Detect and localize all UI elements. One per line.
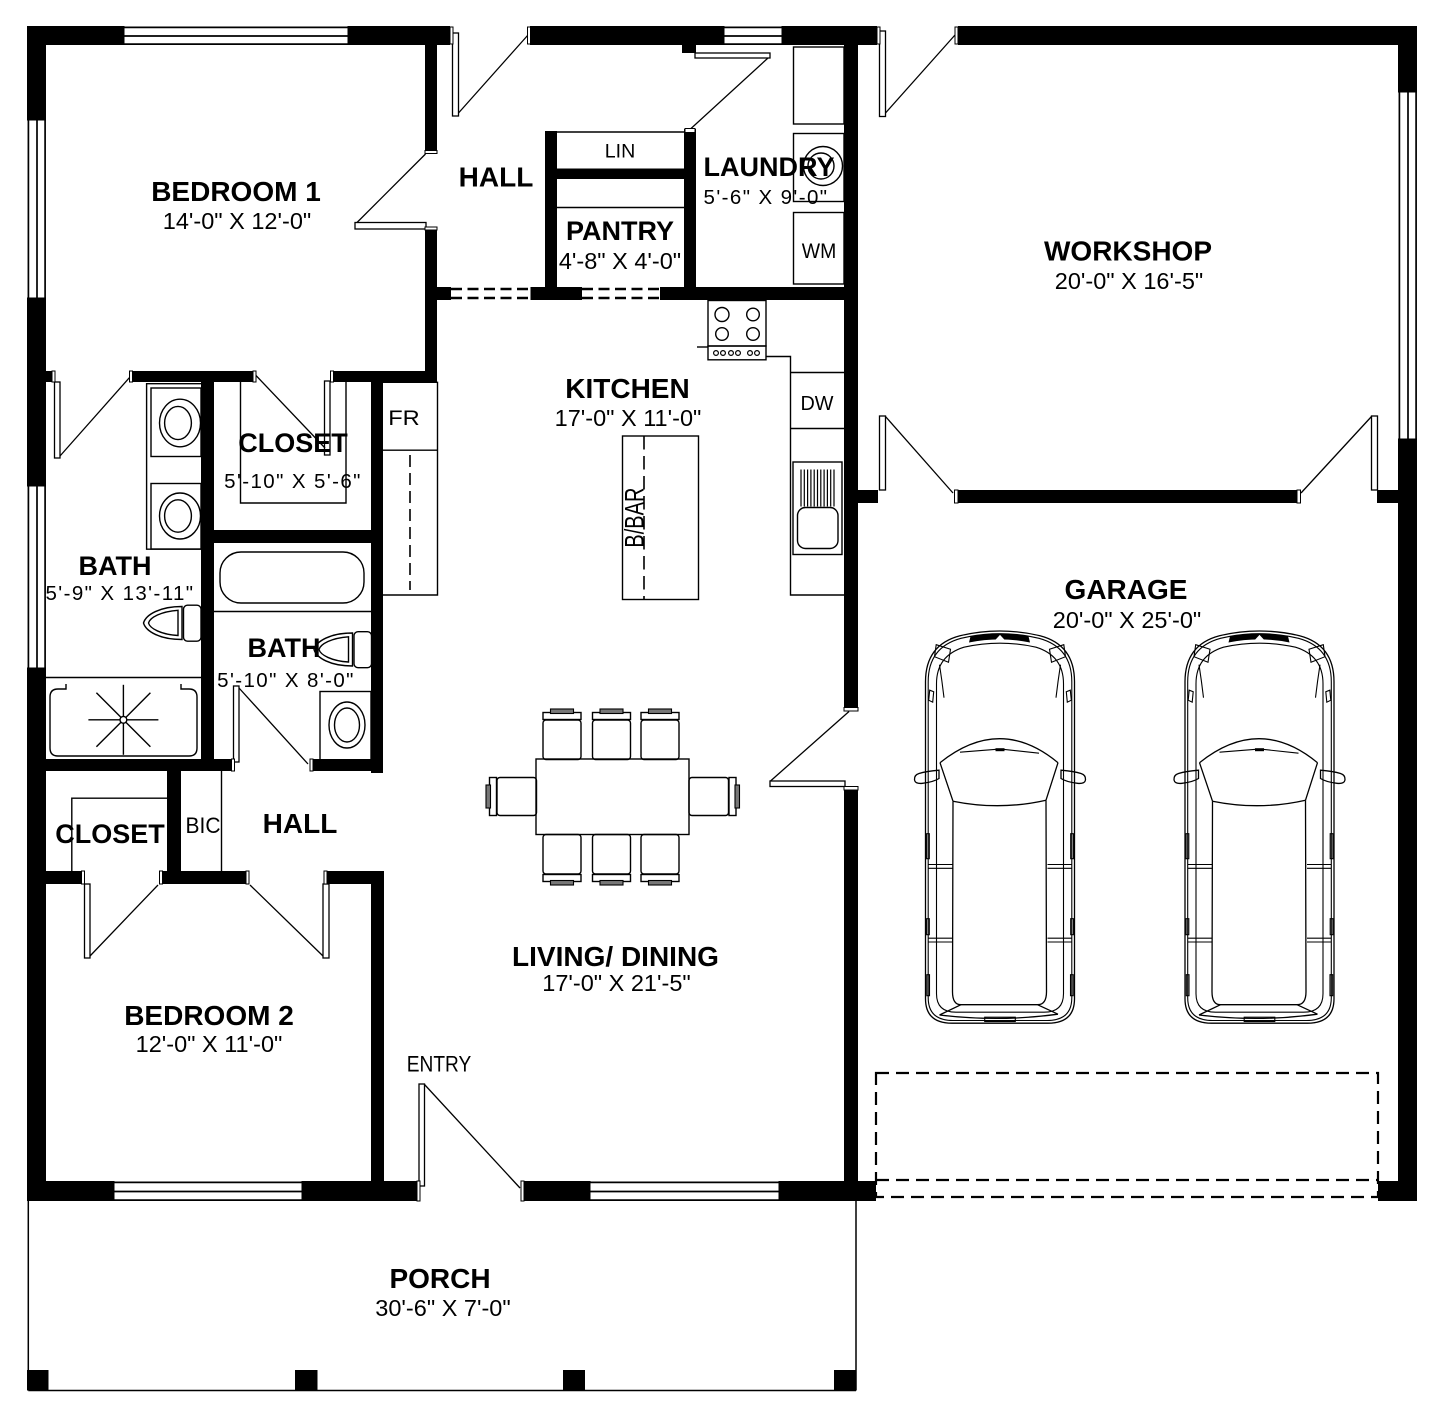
svg-text:ENTRY: ENTRY [407, 1052, 472, 1077]
svg-text:PANTRY: PANTRY [566, 216, 674, 246]
svg-text:30'-6" X 7'-0": 30'-6" X 7'-0" [375, 1295, 510, 1321]
svg-text:HALL: HALL [459, 162, 534, 193]
svg-text:FR: FR [388, 407, 420, 430]
svg-text:12'-0" X 11'-0": 12'-0" X 11'-0" [136, 1031, 283, 1057]
svg-text:HALL: HALL [263, 808, 338, 839]
svg-text:BIC: BIC [186, 813, 221, 838]
svg-text:BEDROOM 2: BEDROOM 2 [124, 1000, 294, 1031]
svg-text:BEDROOM 1: BEDROOM 1 [151, 176, 321, 207]
svg-text:5'-9" X 13'-11": 5'-9" X 13'-11" [46, 582, 195, 605]
svg-text:14'-0" X 12'-0": 14'-0" X 12'-0" [163, 208, 311, 234]
svg-text:5'-6" X 9'-0": 5'-6" X 9'-0" [704, 186, 829, 209]
svg-text:CLOSET: CLOSET [55, 819, 165, 849]
svg-text:BATH: BATH [79, 551, 152, 581]
svg-text:5'-10" X 5'-6": 5'-10" X 5'-6" [224, 470, 362, 493]
svg-text:BATH: BATH [248, 633, 321, 663]
svg-text:20'-0" X 25'-0": 20'-0" X 25'-0" [1053, 607, 1201, 633]
svg-text:17'-0" X 11'-0": 17'-0" X 11'-0" [555, 405, 702, 431]
svg-text:GARAGE: GARAGE [1065, 574, 1188, 605]
svg-text:WM: WM [802, 240, 837, 263]
svg-text:LIN: LIN [605, 142, 636, 163]
svg-text:PORCH: PORCH [389, 1263, 490, 1294]
svg-text:LIVING/ DINING: LIVING/ DINING [512, 941, 719, 972]
svg-text:4'-8" X 4'-0": 4'-8" X 4'-0" [559, 248, 681, 274]
svg-text:5'-10" X 8'-0": 5'-10" X 8'-0" [217, 669, 355, 692]
svg-text:B/BAR: B/BAR [620, 488, 650, 548]
svg-text:LAUNDRY: LAUNDRY [704, 152, 835, 182]
svg-text:CLOSET: CLOSET [238, 428, 348, 458]
svg-text:17'-0" X 21'-5": 17'-0" X 21'-5" [542, 970, 690, 996]
svg-text:20'-0" X 16'-5": 20'-0" X 16'-5" [1055, 268, 1203, 294]
svg-text:WORKSHOP: WORKSHOP [1044, 236, 1212, 267]
svg-text:KITCHEN: KITCHEN [565, 373, 689, 404]
svg-text:DW: DW [801, 393, 834, 415]
